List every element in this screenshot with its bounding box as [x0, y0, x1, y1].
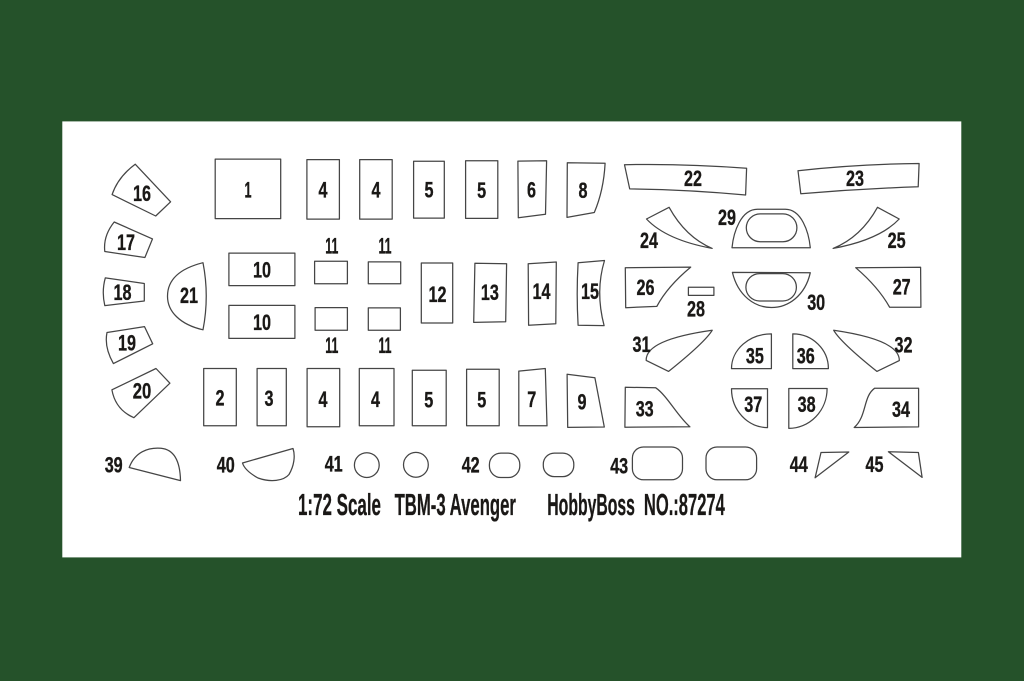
svg-text:44: 44 [790, 452, 808, 477]
svg-text:3: 3 [265, 386, 274, 411]
svg-text:17: 17 [117, 230, 135, 255]
svg-text:4: 4 [319, 387, 328, 412]
svg-text:1:72 Scale: 1:72 Scale [298, 487, 381, 522]
svg-text:5: 5 [424, 388, 433, 413]
svg-text:4: 4 [319, 177, 328, 202]
svg-text:9: 9 [578, 390, 587, 415]
svg-text:8: 8 [579, 178, 588, 203]
svg-text:4: 4 [371, 387, 380, 412]
svg-text:19: 19 [118, 331, 136, 356]
svg-text:39: 39 [105, 453, 123, 478]
svg-text:21: 21 [180, 283, 198, 308]
svg-text:32: 32 [895, 332, 913, 357]
svg-text:22: 22 [684, 166, 702, 191]
svg-text:11: 11 [379, 333, 392, 358]
svg-text:26: 26 [637, 275, 655, 300]
svg-text:34: 34 [892, 397, 910, 422]
svg-text:1: 1 [245, 177, 252, 202]
svg-text:43: 43 [610, 454, 628, 479]
svg-text:5: 5 [477, 388, 486, 413]
svg-text:28: 28 [687, 296, 705, 321]
svg-text:45: 45 [866, 452, 884, 477]
svg-text:18: 18 [114, 280, 132, 305]
svg-text:NO.:87274: NO.:87274 [644, 487, 725, 522]
svg-text:23: 23 [846, 166, 864, 191]
svg-text:33: 33 [636, 396, 654, 421]
svg-text:5: 5 [425, 177, 434, 202]
svg-text:16: 16 [133, 181, 151, 206]
svg-text:30: 30 [807, 290, 825, 315]
svg-text:14: 14 [533, 279, 551, 304]
svg-text:40: 40 [217, 453, 235, 478]
svg-text:25: 25 [888, 228, 906, 253]
svg-text:6: 6 [527, 177, 536, 202]
svg-text:24: 24 [640, 228, 658, 253]
svg-text:36: 36 [797, 344, 815, 369]
svg-text:42: 42 [462, 453, 480, 478]
svg-text:10: 10 [253, 257, 271, 282]
svg-text:37: 37 [744, 392, 762, 417]
svg-text:29: 29 [718, 205, 736, 230]
svg-text:11: 11 [379, 234, 392, 259]
svg-text:38: 38 [798, 392, 816, 417]
svg-text:41: 41 [325, 451, 343, 476]
svg-text:TBM-3 Avenger: TBM-3 Avenger [395, 487, 516, 522]
svg-text:35: 35 [746, 344, 764, 369]
svg-text:5: 5 [477, 178, 486, 203]
svg-text:7: 7 [527, 387, 536, 412]
svg-text:HobbyBoss: HobbyBoss [547, 487, 635, 522]
svg-text:4: 4 [372, 177, 381, 202]
svg-text:11: 11 [325, 333, 338, 358]
svg-text:27: 27 [893, 274, 911, 299]
svg-text:15: 15 [581, 279, 599, 304]
svg-text:20: 20 [133, 378, 152, 403]
svg-text:11: 11 [325, 234, 338, 259]
svg-text:2: 2 [216, 385, 225, 410]
svg-text:13: 13 [481, 280, 499, 305]
svg-text:12: 12 [429, 282, 447, 307]
svg-text:31: 31 [633, 332, 651, 357]
svg-text:10: 10 [253, 310, 271, 335]
